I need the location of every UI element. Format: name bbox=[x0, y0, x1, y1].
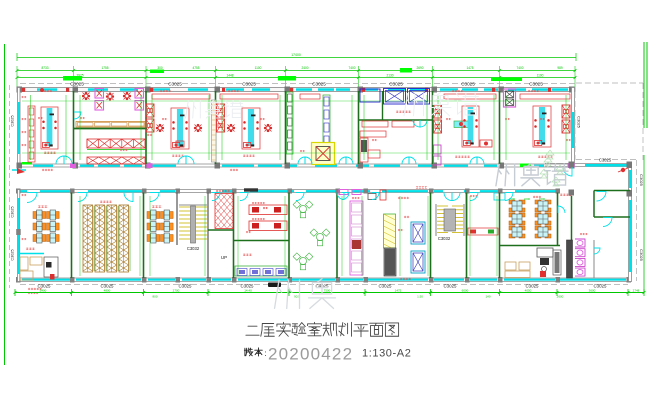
svg-text:2200: 2200 bbox=[524, 197, 531, 201]
svg-text:2700: 2700 bbox=[173, 289, 180, 293]
svg-text:C3025: C3025 bbox=[599, 158, 612, 163]
svg-text:C3032: C3032 bbox=[438, 236, 451, 241]
svg-text:C3025: C3025 bbox=[577, 116, 582, 129]
svg-text:C3025: C3025 bbox=[379, 283, 392, 288]
svg-text:C3025: C3025 bbox=[461, 81, 475, 86]
svg-text:6000: 6000 bbox=[462, 289, 469, 293]
svg-text:C3025: C3025 bbox=[529, 81, 543, 86]
svg-text:1475: 1475 bbox=[395, 289, 402, 293]
svg-text:4050: 4050 bbox=[525, 289, 532, 293]
svg-text:4800: 4800 bbox=[104, 289, 111, 293]
svg-text:C3025: C3025 bbox=[444, 283, 457, 288]
svg-text:20200422: 20200422 bbox=[268, 345, 353, 364]
svg-text:1500: 1500 bbox=[539, 197, 546, 201]
svg-text:C3025: C3025 bbox=[594, 283, 607, 288]
svg-text:1100: 1100 bbox=[537, 74, 544, 78]
svg-text:2748: 2748 bbox=[633, 289, 640, 293]
svg-text:C3025: C3025 bbox=[389, 81, 403, 86]
svg-text:C3025: C3025 bbox=[179, 283, 192, 288]
svg-text:C3025: C3025 bbox=[168, 81, 182, 86]
svg-text:C3025: C3025 bbox=[11, 249, 15, 260]
svg-text:4755: 4755 bbox=[192, 66, 199, 70]
svg-text:1755: 1755 bbox=[101, 66, 108, 70]
svg-text:5400: 5400 bbox=[40, 289, 47, 293]
svg-text:1.50: 1.50 bbox=[417, 295, 423, 299]
svg-text::: : bbox=[264, 349, 266, 358]
svg-text:2400: 2400 bbox=[301, 66, 308, 70]
svg-text:C3025: C3025 bbox=[11, 115, 15, 126]
svg-text:1448: 1448 bbox=[226, 74, 233, 78]
svg-text:140: 140 bbox=[485, 295, 490, 299]
svg-text:C3025: C3025 bbox=[11, 206, 15, 217]
svg-text:C3032: C3032 bbox=[187, 246, 200, 251]
svg-text:C3025: C3025 bbox=[242, 81, 256, 86]
svg-text:7400: 7400 bbox=[516, 66, 523, 70]
svg-text:C3025: C3025 bbox=[312, 81, 326, 86]
svg-text:7400: 7400 bbox=[348, 66, 355, 70]
svg-text:C3025: C3025 bbox=[639, 174, 644, 187]
svg-text:8733: 8733 bbox=[41, 66, 48, 70]
svg-text:C3025: C3025 bbox=[70, 81, 84, 86]
svg-text:UP: UP bbox=[221, 255, 227, 260]
svg-text:7500: 7500 bbox=[324, 289, 331, 293]
svg-text:2690: 2690 bbox=[416, 66, 423, 70]
svg-text:800: 800 bbox=[152, 295, 157, 299]
svg-text:989: 989 bbox=[557, 66, 563, 70]
svg-text:2600: 2600 bbox=[557, 295, 564, 299]
svg-text:1:130-A2: 1:130-A2 bbox=[362, 348, 411, 360]
svg-text:C3025: C3025 bbox=[639, 249, 644, 262]
svg-text:300: 300 bbox=[157, 66, 163, 70]
svg-text:14.40: 14.40 bbox=[244, 289, 252, 293]
svg-text:1475: 1475 bbox=[466, 66, 473, 70]
svg-text:17400: 17400 bbox=[291, 53, 301, 57]
svg-text:1100: 1100 bbox=[255, 66, 262, 70]
svg-text:3600: 3600 bbox=[589, 289, 596, 293]
svg-text:2130: 2130 bbox=[386, 74, 393, 78]
